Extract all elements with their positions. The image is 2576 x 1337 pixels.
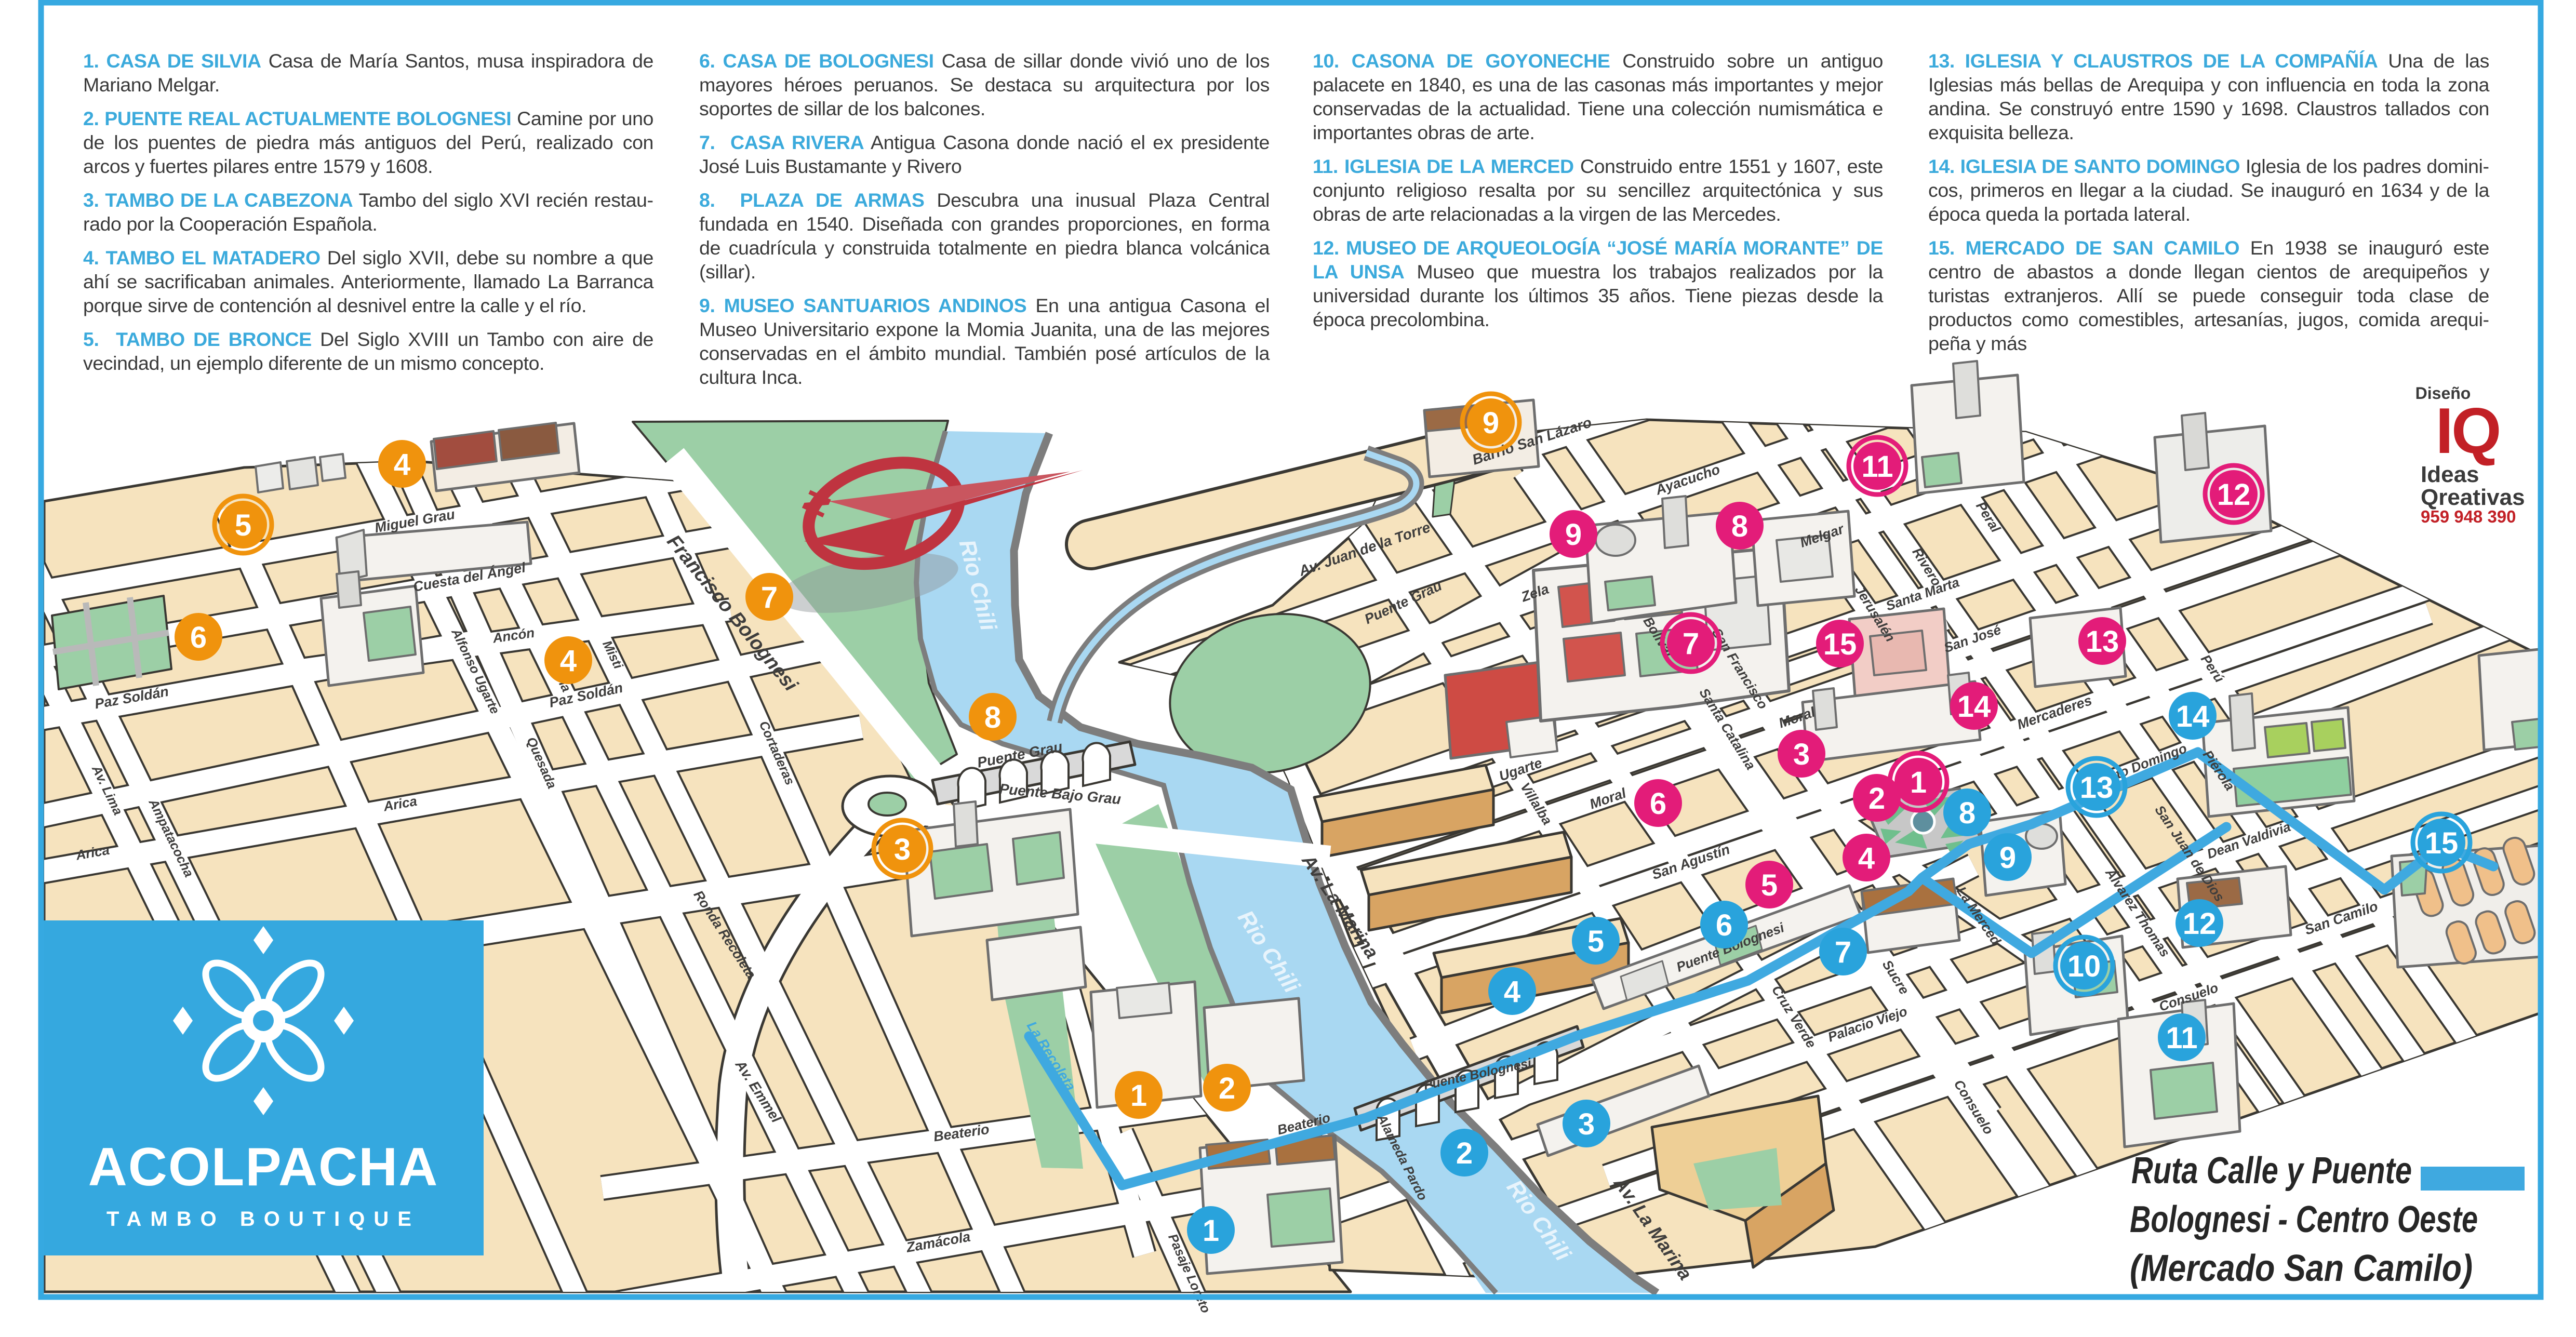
svg-text:9: 9: [1565, 518, 1582, 552]
svg-text:1: 1: [1910, 766, 1927, 799]
svg-text:2: 2: [1219, 1072, 1235, 1105]
svg-text:13: 13: [2080, 771, 2114, 805]
svg-text:(Mercado San Camilo): (Mercado San Camilo): [2130, 1248, 2473, 1289]
svg-text:4: 4: [394, 448, 410, 482]
svg-text:5: 5: [1761, 868, 1778, 902]
svg-text:5: 5: [1587, 925, 1604, 958]
svg-text:14: 14: [1957, 690, 1991, 724]
svg-text:7: 7: [1683, 627, 1699, 661]
svg-text:5: 5: [235, 509, 251, 542]
svg-text:1: 1: [1203, 1214, 1219, 1248]
svg-text:Ideas: Ideas: [2421, 462, 2479, 487]
svg-text:11: 11: [1861, 450, 1893, 484]
svg-text:1: 1: [1130, 1079, 1147, 1113]
svg-text:7: 7: [761, 581, 778, 614]
svg-text:2: 2: [1868, 782, 1885, 815]
svg-text:12: 12: [2183, 907, 2217, 941]
svg-text:12: 12: [2217, 478, 2251, 512]
svg-text:2: 2: [1456, 1137, 1473, 1170]
svg-text:15: 15: [2425, 826, 2459, 860]
svg-text:6: 6: [1716, 908, 1732, 942]
svg-text:Ruta Calle y Puente: Ruta Calle y Puente: [2131, 1150, 2412, 1192]
svg-text:Qreativas: Qreativas: [2421, 485, 2525, 510]
svg-text:ACOLPACHA: ACOLPACHA: [88, 1137, 439, 1197]
svg-text:4: 4: [1858, 841, 1875, 875]
svg-text:3: 3: [1793, 738, 1810, 771]
svg-text:4: 4: [560, 644, 577, 678]
svg-text:9: 9: [1999, 841, 2016, 875]
svg-text:15: 15: [1823, 627, 1857, 661]
svg-text:13: 13: [2086, 625, 2119, 659]
svg-text:10: 10: [2067, 950, 2101, 983]
svg-text:IQ: IQ: [2436, 395, 2500, 467]
svg-text:7: 7: [1835, 935, 1851, 969]
svg-text:9: 9: [1483, 406, 1499, 440]
svg-text:Bolognesi - Centro Oeste: Bolognesi - Centro Oeste: [2130, 1199, 2478, 1240]
svg-text:4: 4: [1504, 975, 1520, 1009]
svg-text:8: 8: [1959, 796, 1976, 830]
svg-text:TAMBO BOUTIQUE: TAMBO BOUTIQUE: [106, 1208, 420, 1231]
svg-text:6: 6: [190, 621, 207, 654]
svg-text:3: 3: [1578, 1107, 1595, 1141]
svg-text:8: 8: [1731, 510, 1748, 543]
svg-text:959 948 390: 959 948 390: [2421, 507, 2516, 526]
svg-text:6: 6: [1650, 787, 1666, 821]
svg-text:14: 14: [2176, 700, 2210, 733]
svg-text:3: 3: [894, 833, 911, 866]
svg-text:11: 11: [2166, 1021, 2197, 1055]
svg-text:8: 8: [984, 701, 1001, 734]
